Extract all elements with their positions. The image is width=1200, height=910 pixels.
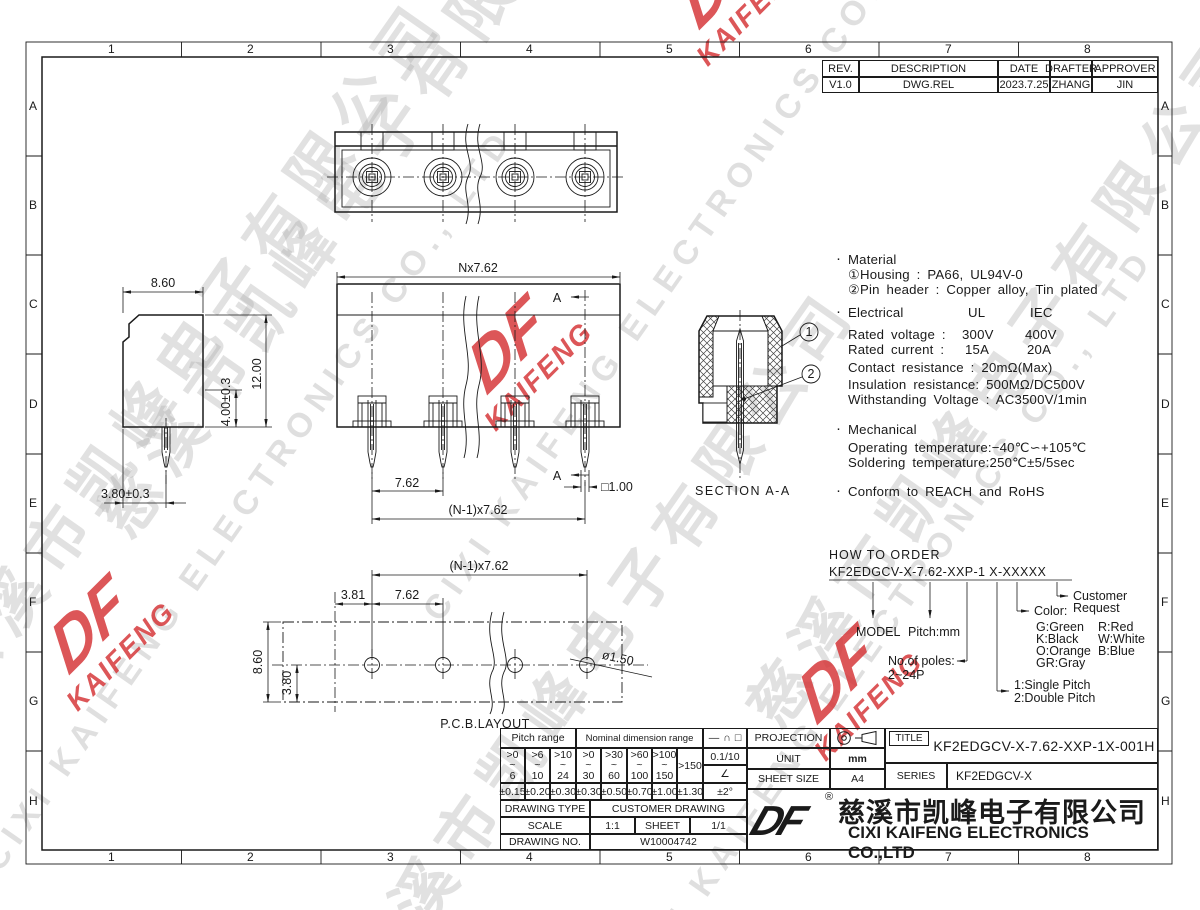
dim-side-pin-length: 4.00±0.3 — [219, 378, 233, 427]
note-insulation-resistance: Insulation resistance: 500MΩ/DC500V — [848, 377, 1085, 392]
zone-top-2: 2 — [247, 42, 254, 56]
section-mark-a-top: A — [553, 291, 562, 305]
dim-span: (N-1)x7.62 — [448, 503, 507, 517]
note-material-housing: ①Housing : PA66, UL94V-0 — [848, 267, 1023, 283]
dim-side-height: 12.00 — [250, 358, 264, 389]
drawing-no-value: W10004742 — [590, 834, 747, 850]
note-conform: Conform to REACH and RoHS — [848, 484, 1045, 499]
dim-total-width: Nx7.62 — [458, 261, 498, 275]
series-value: KF2EDGCV-X — [947, 763, 1158, 789]
note-bullet: · — [836, 303, 841, 320]
note-soldering-temp: Soldering temperature:250℃±5/5sec — [848, 455, 1075, 471]
scale-label: SCALE — [500, 817, 590, 834]
break-lines-front-view — [464, 296, 482, 458]
rev-description: DWG.REL — [859, 77, 998, 93]
tol-nominal-col-1: >0~30 — [576, 748, 601, 783]
zone-right-h: H — [1161, 794, 1170, 808]
title-label: TITLE — [889, 731, 929, 746]
zone-left-h: H — [29, 794, 38, 808]
front-view-dimensions — [337, 272, 620, 524]
projection-symbol — [830, 728, 885, 748]
note-bullet: · — [836, 250, 841, 267]
zone-right-f: F — [1161, 595, 1168, 609]
break-lines-top-view — [466, 124, 483, 224]
tol-pitch-range-header: Pitch range — [500, 728, 576, 748]
company-name-en: CIXI KAIFENG ELECTRONICS CO.,LTD — [848, 823, 1158, 863]
dim-pcb-span: (N-1)x7.62 — [449, 559, 508, 573]
callout-2-pin: 2 — [808, 367, 815, 381]
square-symbol: □ — [735, 732, 741, 744]
zone-right-d: D — [1161, 397, 1170, 411]
zone-bottom-3: 3 — [387, 850, 394, 864]
section-mark-a-bottom: A — [553, 469, 562, 483]
note-rated-current: Rated current : — [848, 342, 944, 357]
rev-header-description: DESCRIPTION — [859, 60, 998, 77]
scale-value: 1:1 — [590, 817, 635, 834]
drawing-no-label: DRAWING NO. — [500, 834, 590, 850]
drawing-sheet: 慈溪市凯峰电子有限公司 慈溪市凯峰电子有限公司 慈溪市凯峰电子有限公司 慈溪市凯… — [0, 0, 1200, 910]
rev-date: 2023.7.25 — [998, 77, 1050, 93]
note-bullet: · — [836, 482, 841, 499]
order-poles-label: No.of poles: — [888, 654, 955, 668]
rev-value: V1.0 — [822, 77, 859, 93]
tol-straightness-value: 0.1/10 — [703, 748, 747, 765]
first-angle-projection-icon — [835, 730, 881, 746]
zone-right-b: B — [1161, 198, 1169, 212]
tol-symbols-header: — ∩ □ — [703, 728, 747, 748]
drawing-type-label: DRAWING TYPE — [500, 800, 590, 817]
rev-approver: JIN — [1092, 77, 1158, 93]
tol-value-6: ±0.70 — [627, 783, 652, 800]
order-color-label: Color: — [1034, 604, 1067, 618]
tol-value-1: ±0.15 — [500, 783, 525, 800]
registered-mark: ® — [825, 791, 833, 803]
sheet-size-value: A4 — [830, 769, 885, 789]
arc-symbol: ∩ — [723, 732, 731, 744]
note-withstanding-voltage: Withstanding Voltage : AC3500V/1min — [848, 392, 1087, 407]
tol-value-2: ±0.20 — [525, 783, 550, 800]
zone-left-b: B — [29, 198, 37, 212]
zone-right-g: G — [1161, 694, 1170, 708]
note-material-title: Material — [848, 252, 897, 267]
tol-value-5: ±0.50 — [601, 783, 627, 800]
dim-pcb-pitch: 7.62 — [395, 588, 419, 602]
dim-pcb-offset: 3.80 — [280, 671, 294, 695]
df-logo: DF — [745, 800, 808, 842]
callout-1-housing: 1 — [806, 325, 813, 339]
note-contact-resistance: Contact resistance : 20mΩ(Max) — [848, 360, 1052, 375]
rev-header-drafter: DRAFTER — [1050, 60, 1092, 77]
tol-nominal-col-2: >30~60 — [601, 748, 627, 783]
zone-left-f: F — [29, 595, 36, 609]
note-rated-voltage-ul: 300V — [962, 327, 994, 342]
unit-label: UNIT — [747, 748, 830, 769]
note-rated-voltage: Rated voltage : — [848, 327, 946, 342]
dim-pcb-first: 3.81 — [341, 588, 365, 602]
zone-top-7: 7 — [945, 42, 952, 56]
tol-pitch-col-1: >0~6 — [500, 748, 525, 783]
front-view: Nx7.62 A A 7.62 (N-1)x7.62 □1.00 — [337, 261, 633, 524]
zone-bottom-5: 5 — [666, 850, 673, 864]
tol-over150: >150 — [677, 748, 703, 783]
drawing-type-value: CUSTOMER DRAWING — [590, 800, 747, 817]
tol-value-8: ±1.30 — [677, 783, 703, 800]
zone-top-1: 1 — [108, 42, 115, 56]
series-label: SERIES — [885, 763, 947, 789]
dim-side-width: 8.60 — [151, 276, 175, 290]
side-view: 8.60 12.00 4.00±0.3 3.80±0.3 — [101, 276, 272, 508]
zone-bottom-1: 1 — [108, 850, 115, 864]
projection-label: PROJECTION — [747, 728, 830, 748]
unit-value: mm — [830, 748, 885, 769]
tol-value-3: ±0.30 — [550, 783, 576, 800]
note-bullet: · — [836, 420, 841, 437]
zone-top-8: 8 — [1084, 42, 1091, 56]
order-customer-2: Request — [1073, 601, 1120, 615]
order-double-pitch: 2:Double Pitch — [1014, 691, 1095, 705]
rev-header-date: DATE — [998, 60, 1050, 77]
order-color-blue: B:Blue — [1098, 644, 1135, 658]
company-logo: DF — [753, 800, 801, 842]
zone-top-4: 4 — [526, 42, 533, 56]
sheet-value: 1/1 — [690, 817, 747, 834]
order-title: HOW TO ORDER — [829, 548, 941, 562]
break-lines-pcb — [490, 612, 507, 714]
rev-header-approver: APPROVER — [1092, 60, 1158, 77]
zone-left-a: A — [29, 99, 37, 113]
tol-nominal-col-4: >100~150 — [652, 748, 677, 783]
sheet-label: SHEET — [635, 817, 690, 834]
note-operating-temp: Operating temperature:−40℃∽+105℃ — [848, 440, 1087, 456]
note-electrical-title: Electrical — [848, 305, 904, 320]
note-ul-header: UL — [968, 305, 985, 320]
order-color-gray: GR:Gray — [1036, 656, 1086, 670]
zone-bottom-2: 2 — [247, 850, 254, 864]
section-label: SECTION A-A — [695, 484, 791, 498]
note-iec-header: IEC — [1030, 305, 1053, 320]
note-rated-voltage-iec: 400V — [1025, 327, 1057, 342]
order-model-label: MODEL — [856, 625, 901, 639]
zone-bottom-4: 4 — [526, 850, 533, 864]
dim-pitch: 7.62 — [395, 476, 419, 490]
order-pitch-label: Pitch:mm — [908, 625, 960, 639]
note-rated-current-iec: 20A — [1027, 342, 1051, 357]
tol-angle-value: ±2° — [703, 783, 747, 800]
zone-top-6: 6 — [805, 42, 812, 56]
note-material-pin: ②Pin header : Copper alloy, Tin plated — [848, 282, 1098, 298]
dim-pin-square: □1.00 — [601, 480, 633, 494]
how-to-order: HOW TO ORDER KF2EDGCV-X-7.62-XXP-1 X-XXX… — [829, 548, 1145, 705]
title-part-number: KF2EDGCV-X-7.62-XXP-1X-001H — [930, 728, 1158, 763]
pcb-layout-view: (N-1)x7.62 3.81 7.62 8.60 3.80 ø1.50 P.C… — [251, 559, 652, 731]
dim-side-offset: 3.80±0.3 — [101, 487, 150, 501]
tol-value-4: ±0.30 — [576, 783, 601, 800]
zone-top-5: 5 — [666, 42, 673, 56]
zone-top-3: 3 — [387, 42, 394, 56]
pcb-dimensions — [263, 570, 652, 702]
top-view — [327, 124, 625, 224]
side-view-dimensions — [104, 287, 272, 508]
sheet-size-label: SHEET SIZE — [747, 769, 830, 789]
straightness-symbol: — — [709, 732, 720, 744]
zone-left-e: E — [29, 496, 37, 510]
tol-value-7: ±1.00 — [652, 783, 677, 800]
tol-pitch-col-3: >10~24 — [550, 748, 576, 783]
note-rated-current-ul: 15A — [965, 342, 989, 357]
zone-bottom-6: 6 — [805, 850, 812, 864]
tol-nominal-col-3: >60~100 — [627, 748, 652, 783]
angle-symbol: ∠ — [703, 765, 747, 783]
zone-right-a: A — [1161, 99, 1169, 113]
order-single-pitch: 1:Single Pitch — [1014, 678, 1090, 692]
zone-right-e: E — [1161, 496, 1169, 510]
revision-table: REV. DESCRIPTION DATE DRAFTER APPROVER V… — [822, 60, 1158, 93]
zone-right-c: C — [1161, 297, 1170, 311]
tol-nominal-header: Nominal dimension range — [576, 728, 703, 748]
dim-pcb-height: 8.60 — [251, 650, 265, 674]
zone-left-g: G — [29, 694, 38, 708]
rev-header-rev: REV. — [822, 60, 859, 77]
order-poles-range: 2~24P — [888, 668, 925, 682]
title-block: Pitch range Nominal dimension range — ∩ … — [500, 728, 1158, 850]
rev-drafter: ZHANG — [1050, 77, 1092, 93]
zone-left-d: D — [29, 397, 38, 411]
section-view: 1 2 SECTION A-A — [695, 310, 820, 498]
note-mechanical-title: Mechanical — [848, 422, 917, 437]
order-code: KF2EDGCV-X-7.62-XXP-1 X-XXXXX — [829, 565, 1046, 579]
zone-left-c: C — [29, 297, 38, 311]
tol-pitch-col-2: >6~10 — [525, 748, 550, 783]
